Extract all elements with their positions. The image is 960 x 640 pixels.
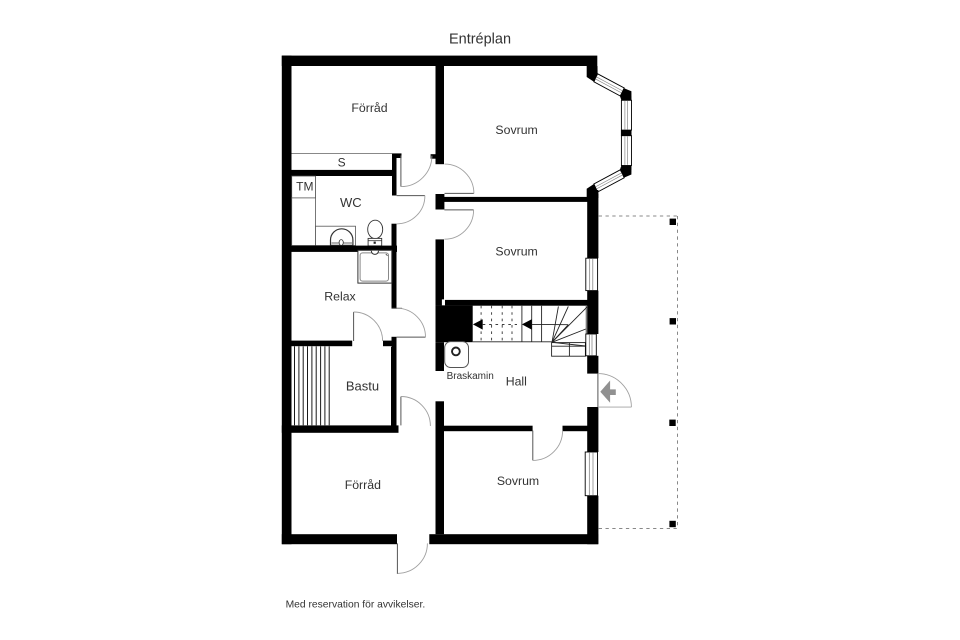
svg-text:WC: WC bbox=[340, 195, 362, 210]
svg-text:Braskamin: Braskamin bbox=[447, 371, 494, 382]
svg-text:Sovrum: Sovrum bbox=[495, 245, 537, 259]
svg-text:S: S bbox=[338, 156, 346, 170]
svg-text:Med reservation för avvikelser: Med reservation för avvikelser. bbox=[286, 600, 426, 611]
svg-text:Förråd: Förråd bbox=[351, 101, 387, 115]
svg-text:Entréplan: Entréplan bbox=[449, 32, 511, 48]
svg-text:Sovrum: Sovrum bbox=[495, 123, 537, 137]
svg-text:Sovrum: Sovrum bbox=[497, 474, 539, 488]
svg-text:Förråd: Förråd bbox=[345, 478, 381, 492]
svg-text:Hall: Hall bbox=[506, 375, 527, 389]
svg-text:Relax: Relax bbox=[324, 290, 356, 304]
svg-text:TM: TM bbox=[296, 179, 313, 193]
svg-text:Bastu: Bastu bbox=[346, 379, 379, 394]
